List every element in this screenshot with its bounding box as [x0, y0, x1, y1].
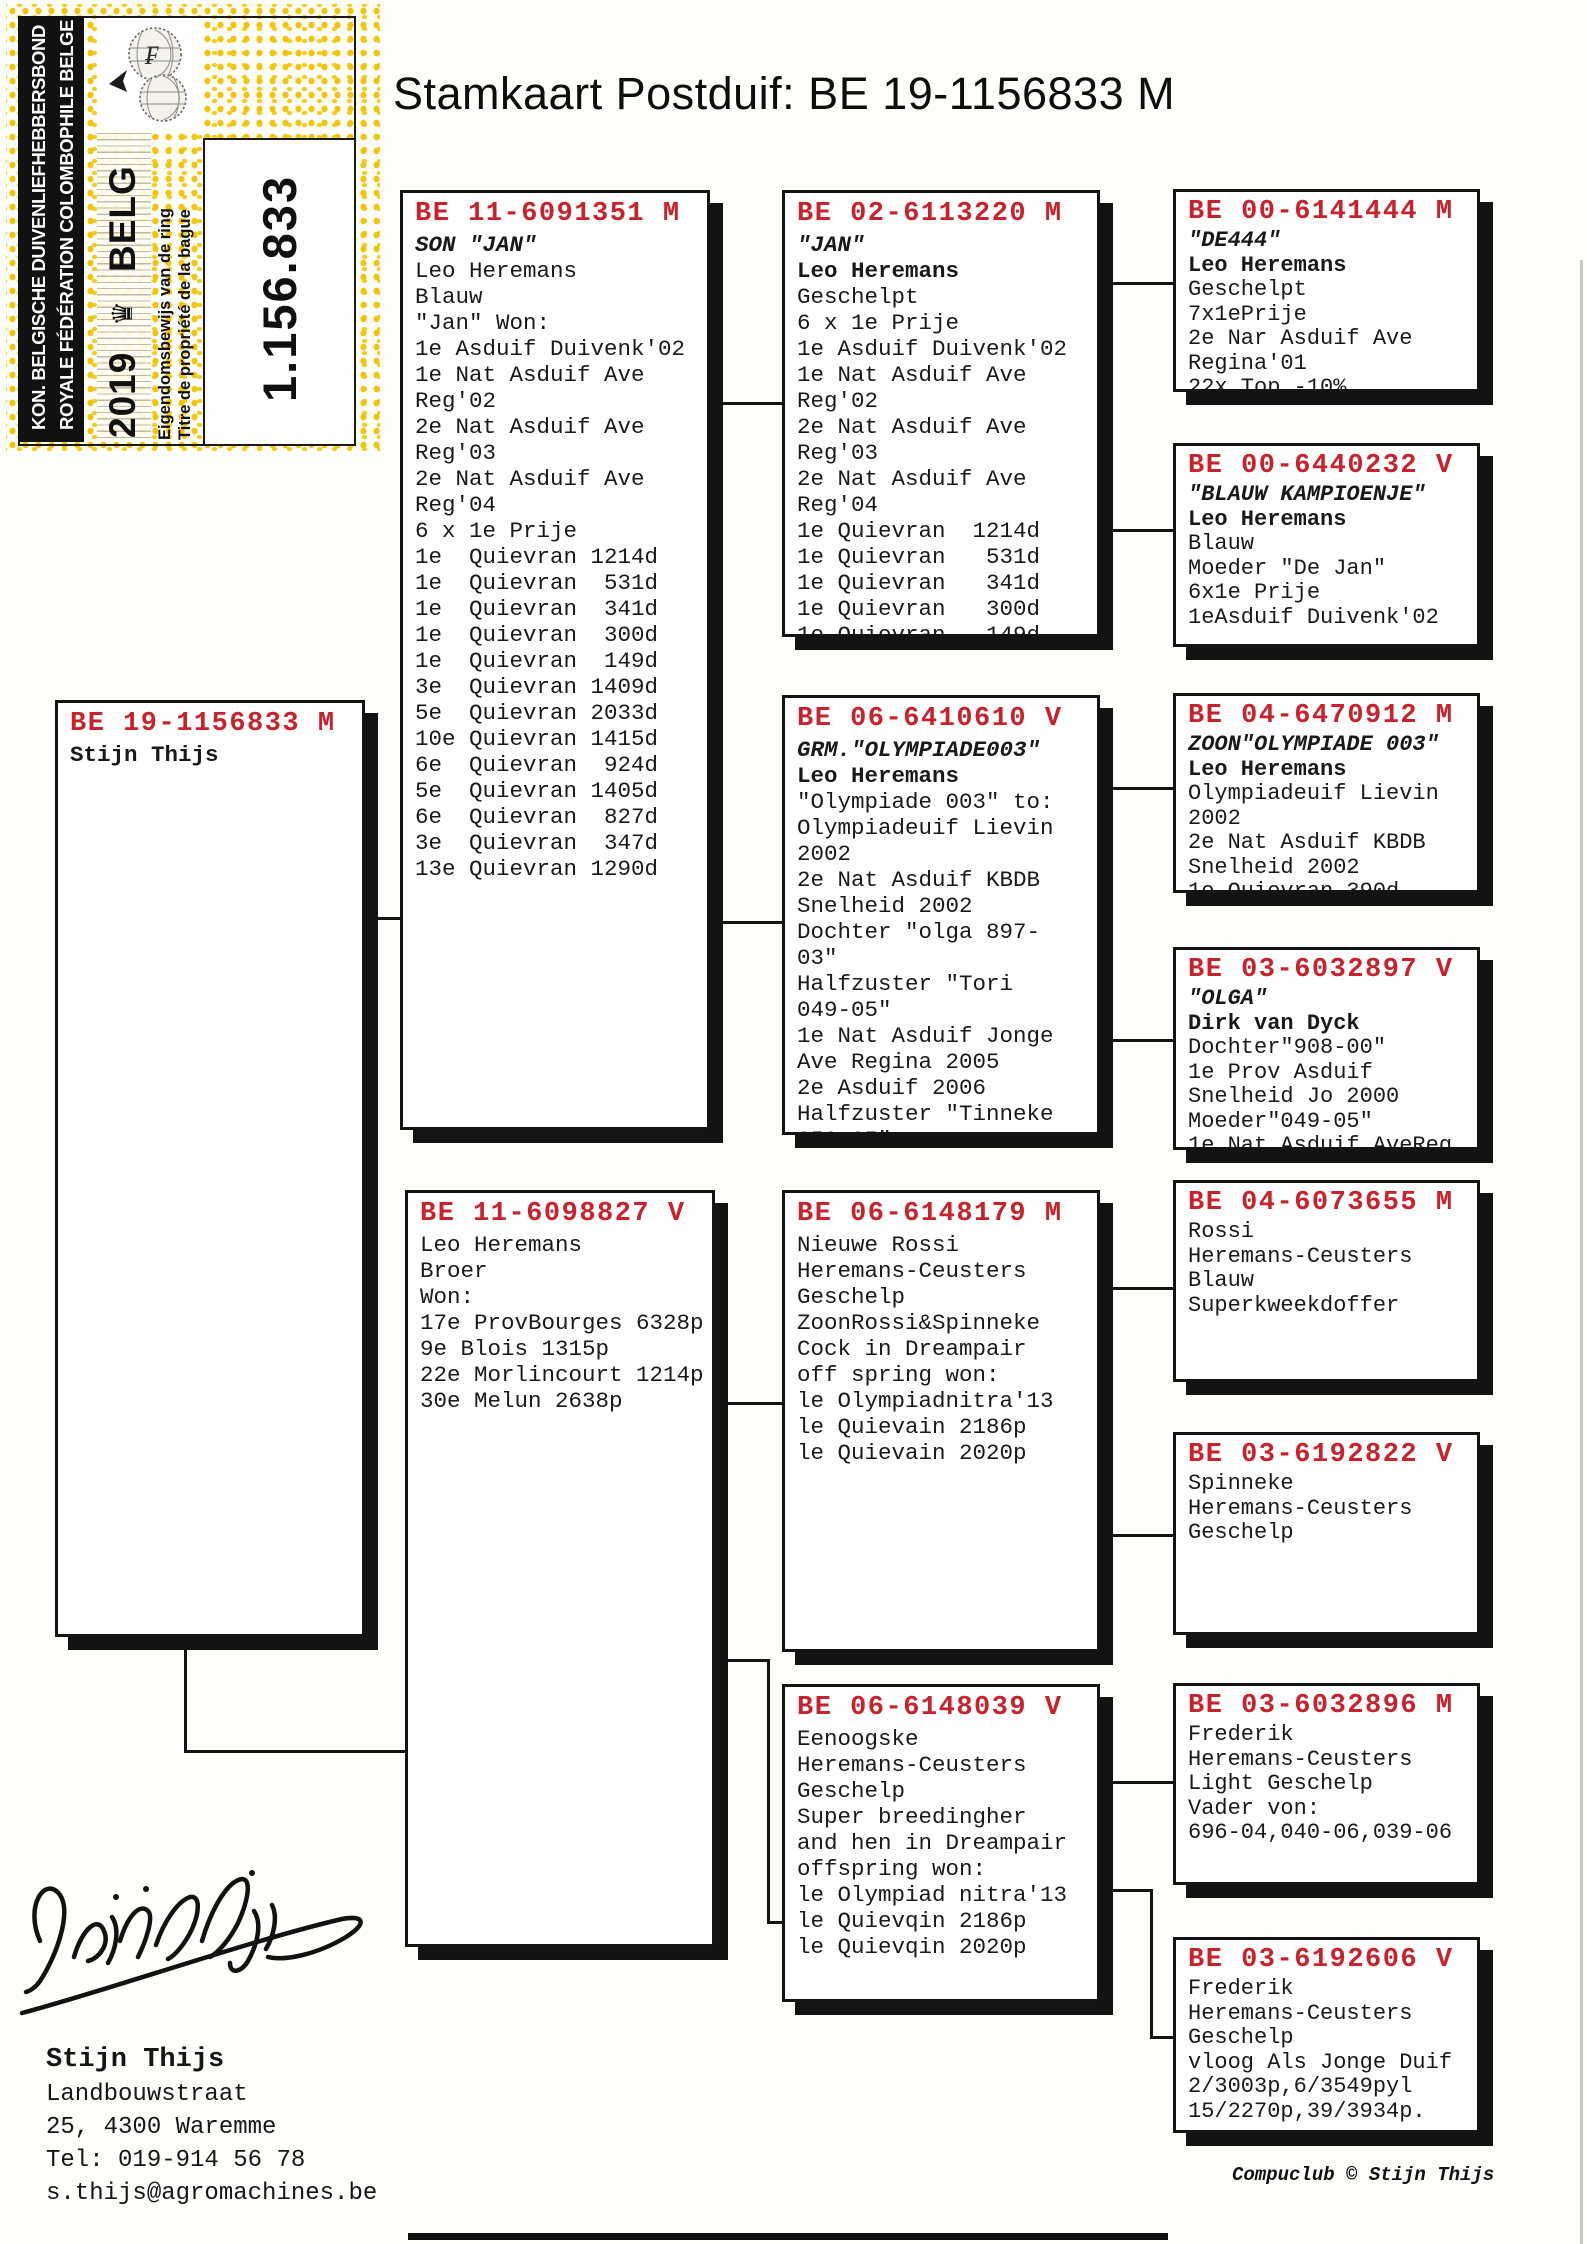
box-lines: "OLGA"Dirk van DyckDochter"908-00"1e Pro… [1188, 987, 1467, 1150]
pedigree-text-line: 15/2270p,39/3934p. [1188, 2100, 1467, 2125]
pedigree-text-line: 1e Quievran 1214d [415, 544, 697, 570]
pedigree-text-line: off spring won: [797, 1362, 1087, 1388]
box-lines: FrederikHeremans-CeustersLight GeschelpV… [1188, 1723, 1467, 1846]
pedigree-box-subject: BE 19-1156833 M Stijn Thijs [55, 700, 365, 1637]
connector-line [723, 921, 784, 924]
pedigree-box-dam: BE 11-6098827 V Leo HeremansBroerWon:17e… [405, 1190, 715, 1947]
pedigree-text-line: Heremans-Ceusters [797, 1258, 1087, 1284]
pedigree-text-line: "JAN" [797, 232, 1087, 258]
pedigree-text-line: Blauw [1188, 532, 1467, 557]
globes-emblem-icon: ₣ [97, 18, 203, 128]
pedigree-text-line: Leo Heremans [797, 258, 1087, 284]
connector-line [1150, 2036, 1175, 2039]
ring-number: BE 04-6073655 M [1188, 1187, 1467, 1219]
pedigree-box-ggparent-4: BE 03-6032897 V "OLGA"Dirk van DyckDocht… [1173, 947, 1480, 1150]
box-lines: RossiHeremans-CeustersBlauwSuperkweekdof… [1188, 1220, 1467, 1318]
pedigree-text-line: Regina'01 [1188, 352, 1467, 377]
pedigree-text-line: 9e Blois 1315p [420, 1336, 702, 1362]
pedigree-text-line: Reg'03 [797, 440, 1087, 466]
pedigree-box-ggparent-8: BE 03-6192606 V FrederikHeremans-Ceuster… [1173, 1937, 1480, 2133]
page-bottom-bar [408, 2233, 1168, 2240]
box-lines: SON "JAN"Leo HeremansBlauw"Jan" Won:1e A… [415, 232, 697, 882]
pedigree-text-line: 2002 [1188, 807, 1467, 832]
pedigree-text-line: SON "JAN" [415, 232, 697, 258]
pedigree-text-line: 1e Quievran 1214d [797, 518, 1087, 544]
ring-number: BE 03-6192822 V [1188, 1439, 1467, 1471]
crown-icon: ♛ [106, 301, 139, 326]
pedigree-text-line: Snelheid 2002 [1188, 856, 1467, 881]
pedigree-box-ggparent-1: BE 00-6141444 M "DE444"Leo HeremansGesch… [1173, 189, 1480, 392]
pedigree-text-line: Leo Heremans [1188, 508, 1467, 533]
pedigree-text-line: 1e Quievran 531d [797, 544, 1087, 570]
pedigree-text-line: Leo Heremans [420, 1232, 702, 1258]
pedigree-text-line: vloog Als Jonge Duif [1188, 2051, 1467, 2076]
pedigree-text-line: 22x Top -10% [1188, 376, 1467, 392]
federation-name-fr: ROYALE FÉDÉRATION COLOMBOPHILE BELGE [54, 20, 80, 430]
pedigree-box-ggparent-2: BE 00-6440232 V "BLAUW KAMPIOENJE"Leo He… [1173, 443, 1480, 647]
pedigree-text-line: 1e Quievran 149d [797, 622, 1087, 637]
connector-line [1150, 1889, 1153, 2039]
pedigree-text-line: Snelheid Jo 2000 [1188, 1085, 1467, 1110]
pedigree-text-line: 1e Nat Asduif AveReg [1188, 1134, 1467, 1150]
owner-name: Stijn Thijs [46, 2042, 377, 2078]
pedigree-text-line: and hen in Dreampair [797, 1830, 1087, 1856]
pedigree-text-line: "OLGA" [1188, 987, 1467, 1012]
pedigree-text-line: 5e Quievran 2033d [415, 700, 697, 726]
pedigree-box-grandsire-maternal: BE 06-6148179 M Nieuwe RossiHeremans-Ceu… [782, 1190, 1100, 1652]
pedigree-text-line: Cock in Dreampair [797, 1336, 1087, 1362]
pedigree-box-ggparent-3: BE 04-6470912 M ZOON"OLYMPIADE 003"Leo H… [1173, 693, 1480, 893]
pedigree-text-line: Geschelpt [1188, 278, 1467, 303]
ring-number: BE 02-6113220 M [797, 197, 1087, 231]
box-lines: ZOON"OLYMPIADE 003"Leo HeremansOlympiade… [1188, 733, 1467, 893]
owner-signature [16, 1845, 386, 2035]
pedigree-text-line: Nieuwe Rossi [797, 1232, 1087, 1258]
pedigree-text-line: Reg'02 [415, 388, 697, 414]
pedigree-text-line: 10e Quievran 1415d [415, 726, 697, 752]
pedigree-text-line: 049-05" [797, 997, 1087, 1023]
pedigree-text-line: Ave Regina 2005 [797, 1049, 1087, 1075]
pedigree-text-line: Broer [420, 1258, 702, 1284]
connector-line [728, 1402, 784, 1405]
pedigree-text-line: 1e Quievran 390d [1188, 880, 1467, 893]
pedigree-text-line: Olympiadeuif Lievin [1188, 782, 1467, 807]
pedigree-box-sire: BE 11-6091351 M SON "JAN"Leo HeremansBla… [400, 190, 710, 1130]
pedigree-text-line: Reg'03 [415, 440, 697, 466]
pedigree-text-line: 1e Quievran 531d [415, 570, 697, 596]
box-lines: Leo HeremansBroerWon:17e ProvBourges 632… [420, 1232, 702, 1414]
pedigree-text-line: Eenoogske [797, 1726, 1087, 1752]
pedigree-text-line: 2e Nat Asduif Ave [415, 414, 697, 440]
pedigree-text-line: "Olympiade 003" to: [797, 789, 1087, 815]
connector-line [184, 1650, 187, 1753]
box-lines: Stijn Thijs [70, 742, 352, 768]
pedigree-box-grandsire-paternal: BE 02-6113220 M "JAN"Leo HeremansGeschel… [782, 190, 1100, 637]
pedigree-text-line: Heremans-Ceusters [1188, 1497, 1467, 1522]
ring-number: BE 03-6032896 M [1188, 1690, 1467, 1722]
pedigree-text-line: GRM."OLYMPIADE003" [797, 737, 1087, 763]
connector-line [1113, 1287, 1175, 1290]
ring-number: BE 06-6410610 V [797, 702, 1087, 736]
connector-line [1113, 1534, 1175, 1537]
pedigree-text-line: Geschelpt [797, 284, 1087, 310]
pedigree-box-ggparent-7: BE 03-6032896 M FrederikHeremans-Ceuster… [1173, 1683, 1480, 1885]
pedigree-text-line: 2002 [797, 841, 1087, 867]
pedigree-text-line: Light Geschelp [1188, 1772, 1467, 1797]
pedigree-text-line: Super breedingher [797, 1804, 1087, 1830]
ring-number: BE 06-6148039 V [797, 1691, 1087, 1725]
pedigree-text-line: 2e Nat Asduif Ave [797, 466, 1087, 492]
pedigree-text-line: Olympiadeuif Lievin [797, 815, 1087, 841]
pedigree-text-line: Won: [420, 1284, 702, 1310]
box-lines: "BLAUW KAMPIOENJE"Leo HeremansBlauwMoede… [1188, 483, 1467, 630]
pedigree-text-line: 2e Nat Asduif Ave [797, 414, 1087, 440]
pedigree-text-line: Halfzuster "Tinneke [797, 1101, 1087, 1127]
pedigree-text-line: 6e Quievran 827d [415, 804, 697, 830]
ring-number: BE 00-6141444 M [1188, 196, 1467, 228]
pedigree-text-line: Geschelp [1188, 1521, 1467, 1546]
pedigree-text-line: 1eAsduif Duivenk'02 [1188, 606, 1467, 631]
pedigree-text-line: 1e Prov Asduif [1188, 1061, 1467, 1086]
pedigree-text-line: offspring won: [797, 1856, 1087, 1882]
pedigree-text-line: 2e Nat Asduif KBDB [1188, 831, 1467, 856]
box-lines: SpinnekeHeremans-CeustersGeschelp [1188, 1472, 1467, 1546]
pedigree-text-line: Snelheid 2002 [797, 893, 1087, 919]
ring-number-subject: BE 19-1156833 M [70, 707, 352, 741]
box-lines: "DE444"Leo HeremansGeschelpt7x1ePrije2e … [1188, 229, 1467, 392]
box-lines: FrederikHeremans-CeustersGeschelpvloog A… [1188, 1977, 1467, 2124]
ring-ownership-stamp: KON. BELGISCHE DUIVENLIEFHEBBERSBOND ROY… [6, 4, 380, 454]
pedigree-text-line: Geschelp [1188, 2026, 1467, 2051]
connector-line [364, 917, 402, 920]
email-address: s.thijs@agromachines.be [46, 2177, 377, 2210]
pedigree-text-line: Spinneke [1188, 1472, 1467, 1497]
pedigree-text-line: 3e Quievran 347d [415, 830, 697, 856]
pedigree-text-line: Leo Heremans [1188, 254, 1467, 279]
ring-number-sire: BE 11-6091351 M [415, 197, 697, 231]
pedigree-text-line: Dochter "olga 897- [797, 919, 1087, 945]
connector-line [1113, 529, 1175, 532]
pedigree-text-line: 13e Quievran 1290d [415, 856, 697, 882]
pedigree-text-line: Dirk van Dyck [1188, 1012, 1467, 1037]
pedigree-text-line: 2/3003p,6/3549pyl [1188, 2075, 1467, 2100]
pedigree-text-line: 17e ProvBourges 6328p [420, 1310, 702, 1336]
ring-number: BE 03-6032897 V [1188, 954, 1467, 986]
owner-address-block: Stijn Thijs Landbouwstraat 25, 4300 Ware… [46, 2042, 377, 2210]
ring-number: BE 04-6470912 M [1188, 700, 1467, 732]
pedigree-text-line: 6 x 1e Prije [797, 310, 1087, 336]
pedigree-text-line: 1e Quievran 300d [797, 596, 1087, 622]
pedigree-text-line: "BLAUW KAMPIOENJE" [1188, 483, 1467, 508]
address-street: Landbouwstraat [46, 2078, 377, 2111]
pedigree-text-line: 6 x 1e Prije [415, 518, 697, 544]
pedigree-text-line: Moeder "De Jan" [1188, 557, 1467, 582]
pedigree-text-line: 1e Asduif Duivenk'02 [797, 336, 1087, 362]
pedigree-text-line: 6e Quievran 924d [415, 752, 697, 778]
stamp-country: BELG [102, 165, 144, 272]
pedigree-text-line: Superkweekdoffer [1188, 1294, 1467, 1319]
pedigree-text-line: le Olympiad nitra'13 [797, 1882, 1087, 1908]
pedigree-text-line: Leo Heremans [1188, 758, 1467, 783]
pedigree-text-line: Rossi [1188, 1220, 1467, 1245]
compuclub-credit: Compuclub © Stijn Thijs [1232, 2164, 1494, 2186]
pedigree-text-line: Reg'04 [797, 492, 1087, 518]
pedigree-text-line: Moeder"049-05" [1188, 1110, 1467, 1135]
pedigree-text-line: 050-05" [797, 1127, 1087, 1135]
pedigree-text-line: 3e Quievran 1409d [415, 674, 697, 700]
connector-line [723, 402, 784, 405]
pedigree-text-line: 2e Nat Asduif KBDB [797, 867, 1087, 893]
box-lines: GRM."OLYMPIADE003"Leo Heremans"Olympiade… [797, 737, 1087, 1135]
pedigree-text-line: le Quievain 2020p [797, 1440, 1087, 1466]
pedigree-text-line: 1e Nat Asduif Ave [797, 362, 1087, 388]
pedigree-text-line: Blauw [415, 284, 697, 310]
pedigree-text-line: 1e Quievran 149d [415, 648, 697, 674]
pedigree-text-line: 1e Nat Asduif Jonge [797, 1023, 1087, 1049]
pedigree-text-line: Heremans-Ceusters [1188, 1245, 1467, 1270]
connector-line [184, 1750, 408, 1753]
ring-number: 1.156.833 [252, 175, 307, 402]
pedigree-text-line: le Quievqin 2186p [797, 1908, 1087, 1934]
box-lines: EenoogskeHeremans-CeustersGeschelpSuper … [797, 1726, 1087, 1960]
pedigree-text-line: Leo Heremans [797, 763, 1087, 789]
address-city: 25, 4300 Waremme [46, 2111, 377, 2144]
pedigree-text-line: 03" [797, 945, 1087, 971]
pedigree-text-line: ZoonRossi&Spinneke [797, 1310, 1087, 1336]
connector-line [1113, 1781, 1175, 1784]
pedigree-text-line: Halfzuster "Tori [797, 971, 1087, 997]
pedigree-text-line: ZOON"OLYMPIADE 003" [1188, 733, 1467, 758]
pedigree-text-line: Heremans-Ceusters [1188, 2002, 1467, 2027]
pedigree-text-line: 22e Morlincourt 1214p [420, 1362, 702, 1388]
pedigree-text-line: Dochter"908-00" [1188, 1036, 1467, 1061]
federation-emblem: ₣ [97, 18, 203, 128]
svg-text:₣: ₣ [144, 41, 159, 71]
pedigree-text-line: 6x1e Prije [1188, 581, 1467, 606]
pedigree-text-line: 1e Quievran 341d [415, 596, 697, 622]
pedigree-card-page: KON. BELGISCHE DUIVENLIEFHEBBERSBOND ROY… [0, 0, 1587, 2244]
pedigree-text-line: 696-04,040-06,039-06 [1188, 1821, 1467, 1846]
pedigree-text-line: "Jan" Won: [415, 310, 697, 336]
phone-number: Tel: 019-914 56 78 [46, 2144, 377, 2177]
box-lines: "JAN"Leo HeremansGeschelpt6 x 1e Prije1e… [797, 232, 1087, 637]
ring-number: BE 00-6440232 V [1188, 450, 1467, 482]
pedigree-text-line: 1e Quievran 300d [415, 622, 697, 648]
ring-number: BE 03-6192606 V [1188, 1944, 1467, 1976]
pedigree-text-line: le Quievain 2186p [797, 1414, 1087, 1440]
connector-line [1113, 282, 1175, 285]
pedigree-text-line: Leo Heremans [415, 258, 697, 284]
pedigree-text-line: Frederik [1188, 1977, 1467, 2002]
pedigree-text-line: Stijn Thijs [70, 742, 352, 768]
box-lines: Nieuwe RossiHeremans-CeustersGeschelpZoo… [797, 1232, 1087, 1466]
pedigree-text-line: le Quievqin 2020p [797, 1934, 1087, 1960]
pedigree-text-line: le Olympiadnitra'13 [797, 1388, 1087, 1414]
pedigree-text-line: 1e Asduif Duivenk'02 [415, 336, 697, 362]
pedigree-box-granddam-maternal: BE 06-6148039 V EenoogskeHeremans-Ceuste… [782, 1684, 1100, 2002]
pedigree-text-line: Heremans-Ceusters [797, 1752, 1087, 1778]
pedigree-text-line: "DE444" [1188, 229, 1467, 254]
connector-line [728, 1659, 770, 1662]
pedigree-text-line: 1e Nat Asduif Ave [415, 362, 697, 388]
connector-line [767, 1659, 770, 1924]
ownership-text-nl: Eigendomsbewijs van de ring [156, 208, 175, 440]
ring-number-dam: BE 11-6098827 V [420, 1197, 702, 1231]
page-title: Stamkaart Postduif: BE 19-1156833 M [393, 68, 1175, 120]
pedigree-text-line: Reg'04 [415, 492, 697, 518]
pedigree-box-ggparent-6: BE 03-6192822 V SpinnekeHeremans-Ceuster… [1173, 1432, 1480, 1635]
pedigree-text-line: Heremans-Ceusters [1188, 1748, 1467, 1773]
ring-number: BE 06-6148179 M [797, 1197, 1087, 1231]
pedigree-text-line: Reg'02 [797, 388, 1087, 414]
pedigree-text-line: 5e Quievran 1405d [415, 778, 697, 804]
pedigree-text-line: 30e Melun 2638p [420, 1388, 702, 1414]
ownership-text-fr: Titre de propriété de la bague [176, 209, 195, 440]
signature-icon [16, 1845, 386, 2030]
pedigree-text-line: 2e Nat Asduif Ave [415, 466, 697, 492]
connector-line [1113, 1889, 1153, 1892]
pedigree-text-line: Vader von: [1188, 1797, 1467, 1822]
federation-name-nl: KON. BELGISCHE DUIVENLIEFHEBBERSBOND [26, 25, 52, 430]
pedigree-box-ggparent-5: BE 04-6073655 M RossiHeremans-CeustersBl… [1173, 1180, 1480, 1382]
stamp-year: 2019 [102, 352, 144, 438]
scan-edge-artifact [1580, 260, 1583, 2244]
pedigree-text-line: 2e Asduif 2006 [797, 1075, 1087, 1101]
pedigree-box-granddam-paternal: BE 06-6410610 V GRM."OLYMPIADE003"Leo He… [782, 695, 1100, 1135]
pedigree-text-line: 1e Quievran 341d [797, 570, 1087, 596]
pedigree-text-line: Blauw [1188, 1269, 1467, 1294]
pedigree-text-line: Geschelp [797, 1778, 1087, 1804]
pedigree-text-line: Geschelp [797, 1284, 1087, 1310]
connector-line [1113, 787, 1175, 790]
connector-line [1113, 1039, 1175, 1042]
pedigree-text-line: 2e Nar Asduif Ave [1188, 327, 1467, 352]
pedigree-text-line: 7x1ePrije [1188, 303, 1467, 328]
pedigree-text-line: Frederik [1188, 1723, 1467, 1748]
